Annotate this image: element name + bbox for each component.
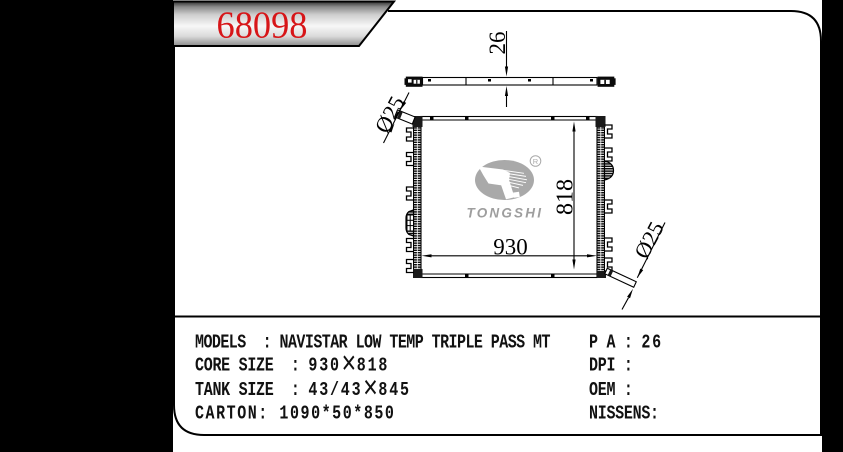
svg-text:68098: 68098 <box>217 5 308 47</box>
svg-text:818: 818 <box>553 179 579 215</box>
svg-text:930: 930 <box>493 235 528 260</box>
svg-text:R: R <box>533 157 539 166</box>
svg-text:TONGSHI: TONGSHI <box>467 206 544 221</box>
svg-text:26: 26 <box>485 32 510 55</box>
